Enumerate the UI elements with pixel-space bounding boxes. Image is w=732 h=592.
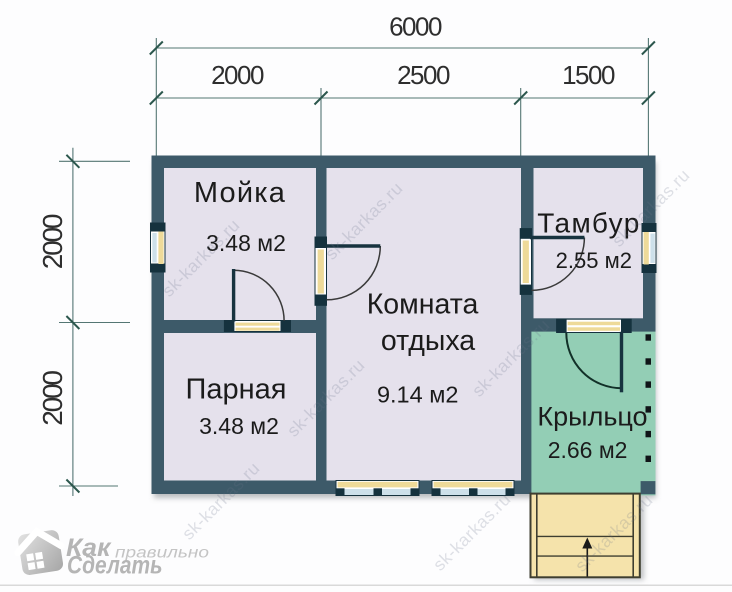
svg-text:6000: 6000 [389, 12, 442, 42]
svg-text:2.66 м2: 2.66 м2 [548, 437, 628, 463]
svg-text:1500: 1500 [562, 60, 615, 90]
svg-text:Мойка: Мойка [194, 177, 286, 209]
svg-text:Сделать: Сделать [67, 552, 163, 580]
svg-text:отдыха: отдыха [381, 325, 475, 357]
svg-text:2000: 2000 [37, 214, 68, 269]
svg-text:9.14 м2: 9.14 м2 [377, 382, 459, 408]
svg-text:Комната: Комната [367, 289, 479, 321]
svg-text:2500: 2500 [397, 60, 450, 90]
svg-text:3.48 м2: 3.48 м2 [199, 413, 279, 439]
svg-text:Крыльцо: Крыльцо [537, 402, 647, 432]
svg-text:2000: 2000 [37, 371, 68, 426]
svg-text:Парная: Парная [186, 374, 287, 406]
svg-text:2.55 м2: 2.55 м2 [556, 248, 632, 273]
svg-text:2000: 2000 [211, 60, 264, 90]
